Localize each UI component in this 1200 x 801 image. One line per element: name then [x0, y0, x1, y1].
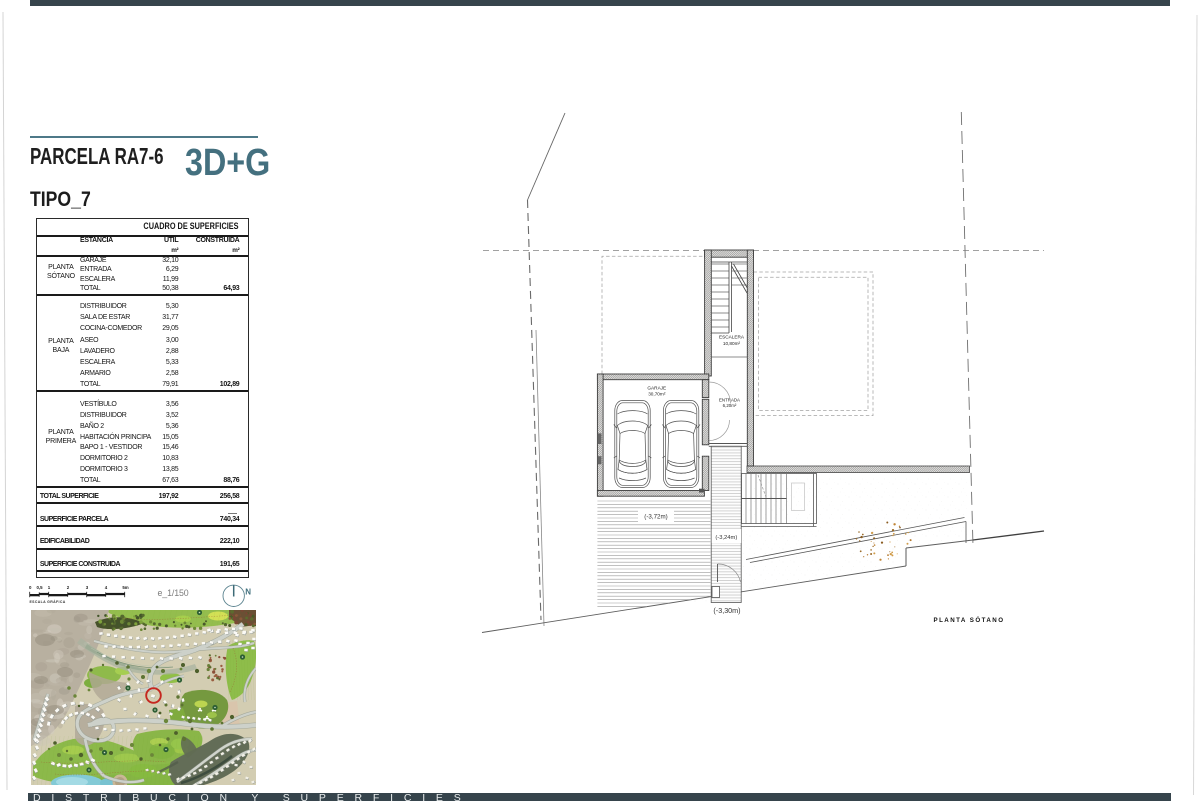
svg-text:ESCALERA: ESCALERA	[719, 335, 745, 340]
svg-text:PLANTA SÓTANO: PLANTA SÓTANO	[934, 616, 1005, 624]
svg-text:10,80m²: 10,80m²	[723, 341, 741, 346]
svg-text:(-3,30m): (-3,30m)	[713, 606, 740, 615]
svg-text:(-3,72m): (-3,72m)	[644, 514, 667, 521]
svg-text:ENTRADA: ENTRADA	[719, 398, 740, 403]
svg-text:30,70m²: 30,70m²	[648, 392, 666, 397]
svg-text:6,20m²: 6,20m²	[723, 403, 737, 408]
svg-text:(-3,24m): (-3,24m)	[715, 535, 737, 541]
svg-text:GARAJE: GARAJE	[647, 386, 666, 391]
